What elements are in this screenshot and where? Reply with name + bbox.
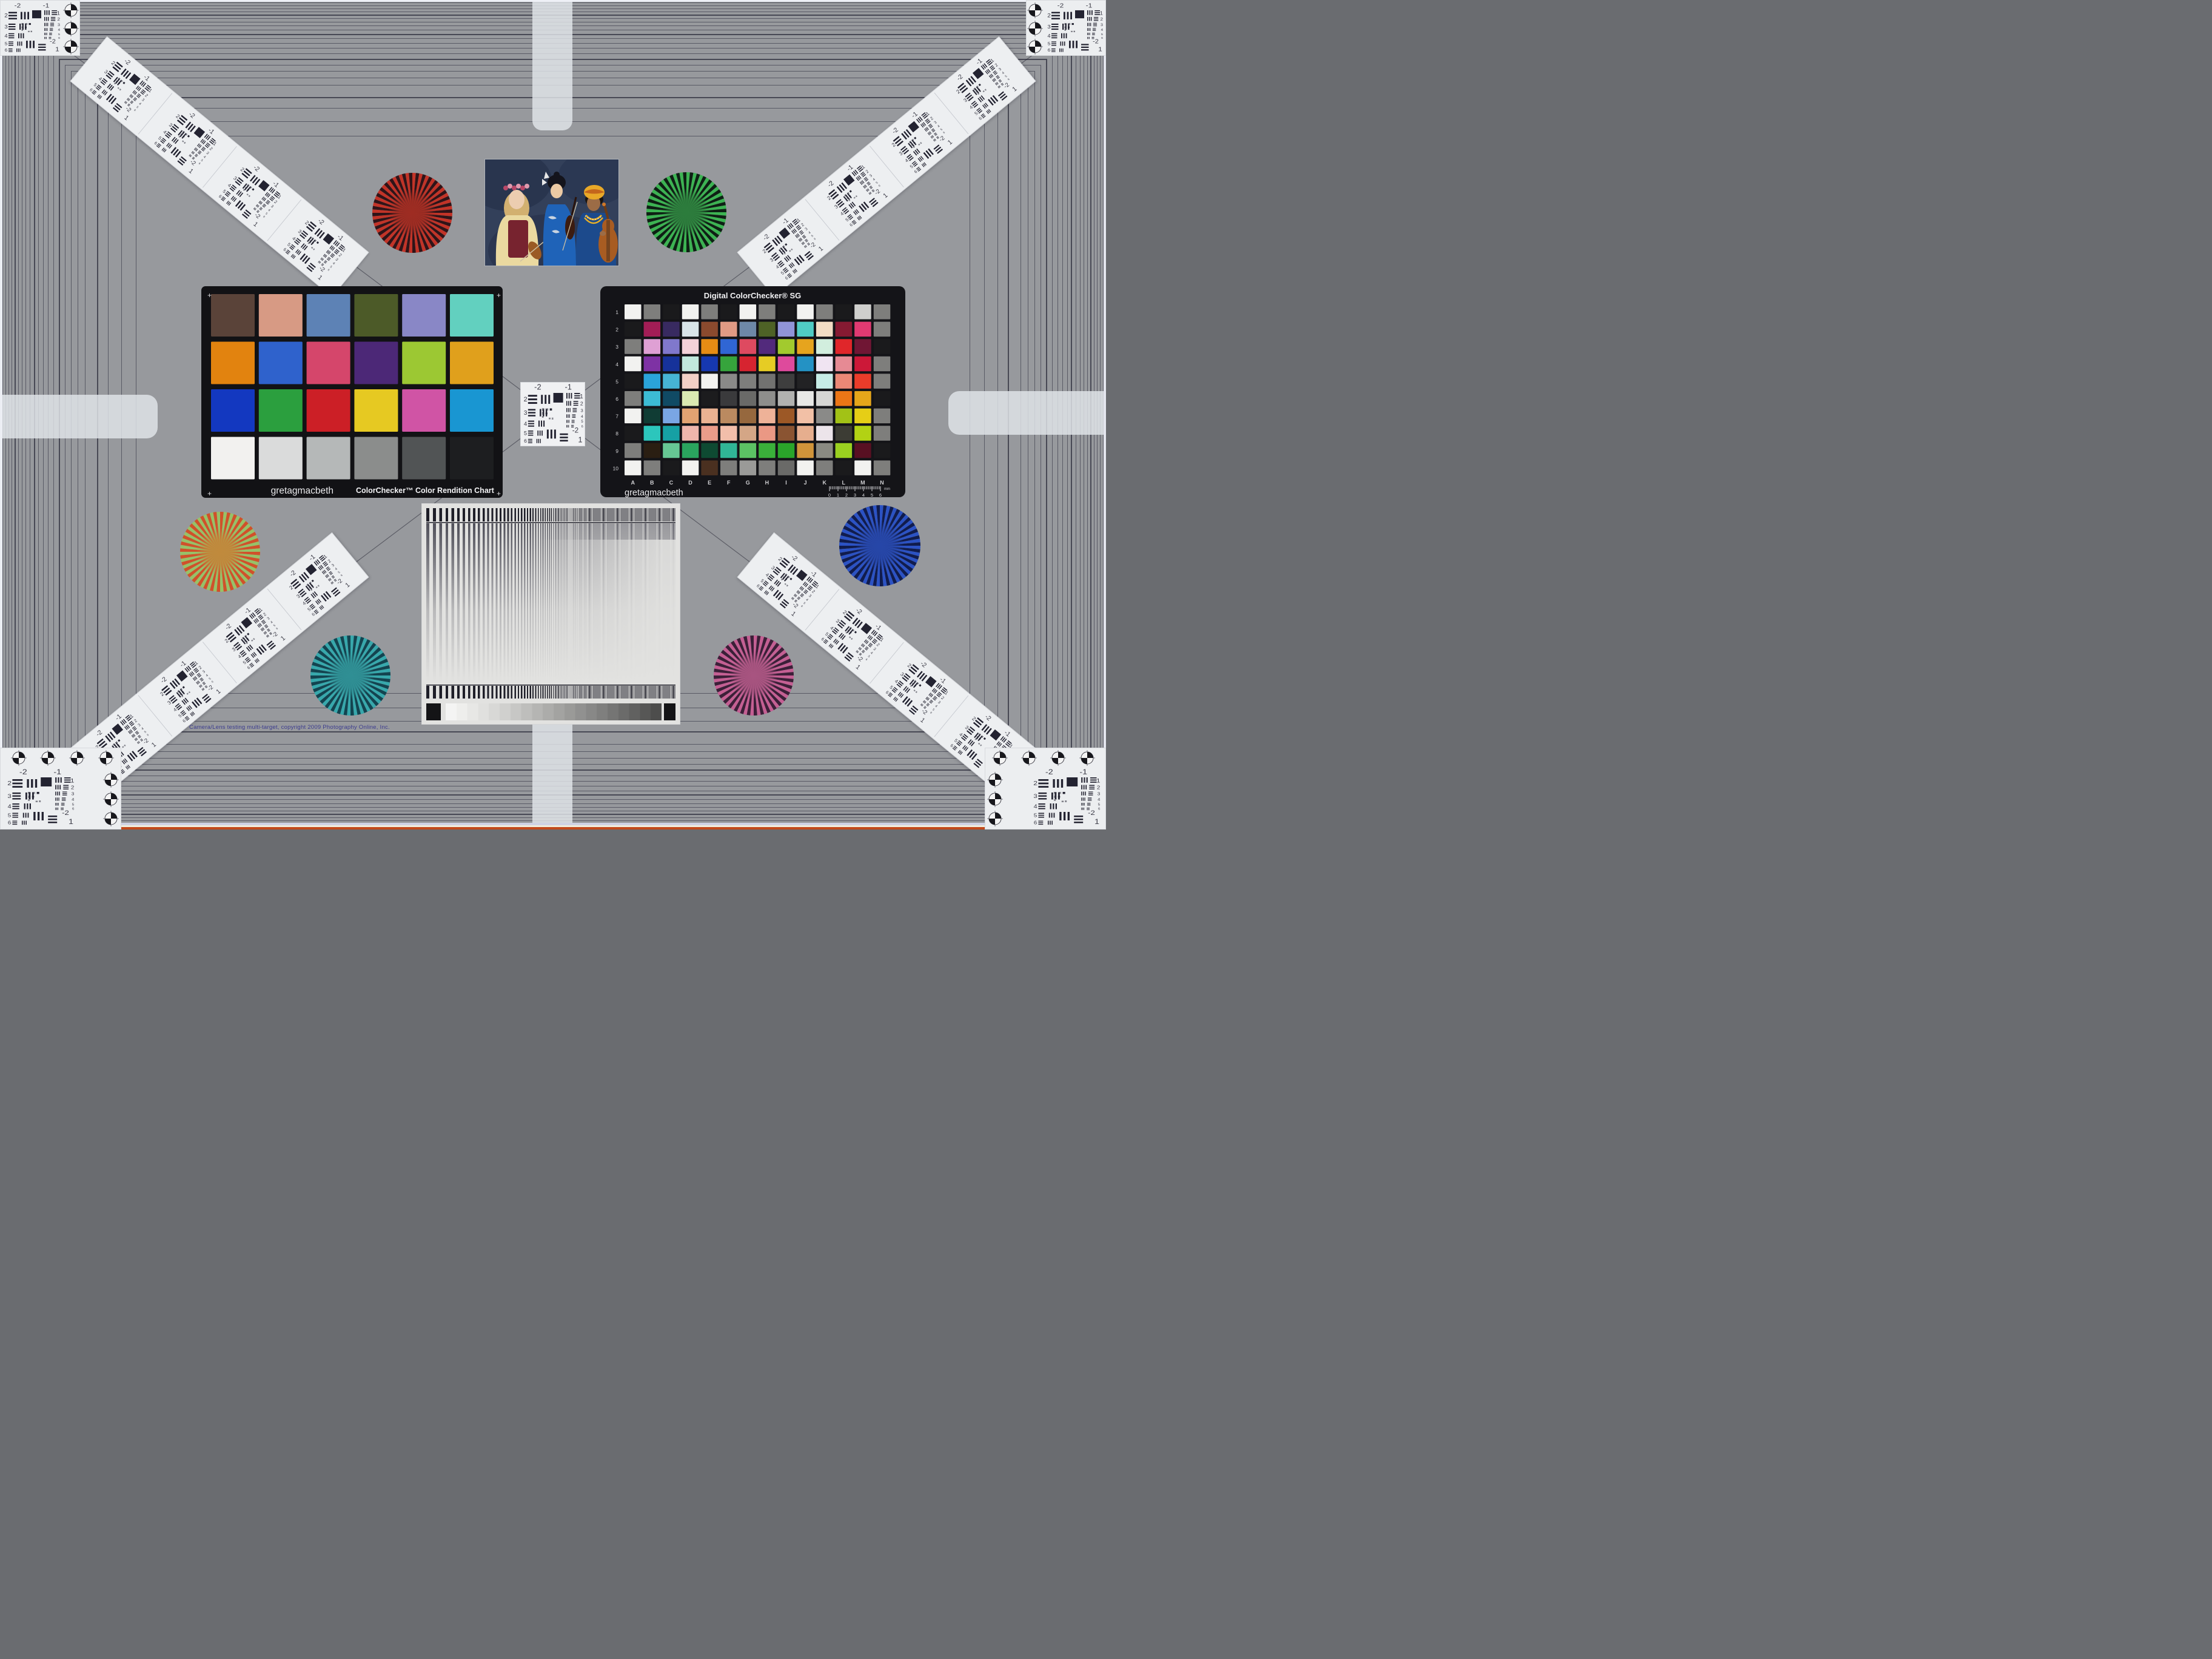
svg-text:-2: -2 — [791, 602, 800, 610]
svg-text:-1: -1 — [938, 676, 947, 685]
svg-text:8: 8 — [615, 431, 618, 437]
sg-patch — [836, 460, 853, 475]
svg-text:-2: -2 — [122, 58, 132, 67]
svg-text:6: 6 — [865, 658, 868, 662]
sg-patch — [625, 409, 642, 424]
color-patch — [211, 389, 255, 432]
sg-patch — [701, 443, 718, 458]
svg-text:3: 3 — [58, 23, 60, 27]
svg-text:1: 1 — [252, 221, 259, 229]
svg-text:6: 6 — [950, 743, 954, 748]
sg-patch — [625, 443, 642, 458]
svg-text:6: 6 — [211, 680, 214, 683]
sg-patch — [701, 460, 718, 475]
svg-text:4: 4 — [805, 598, 808, 602]
svg-text:-1: -1 — [43, 2, 50, 9]
svg-text:5: 5 — [760, 578, 765, 584]
siemens-star-red — [372, 173, 452, 253]
svg-text:-2: -2 — [1002, 82, 1011, 90]
color-patch — [450, 437, 494, 480]
siemens-star-blue — [839, 505, 920, 586]
quadrant-circle-mark — [992, 750, 1008, 766]
svg-text:E: E — [708, 480, 711, 486]
sg-patch — [874, 304, 891, 320]
svg-text:-2: -2 — [856, 654, 864, 663]
svg-text:-2: -2 — [938, 135, 947, 143]
sg-patch — [797, 357, 814, 372]
svg-text:3: 3 — [266, 616, 271, 621]
svg-text:6: 6 — [885, 690, 890, 695]
svg-text:1: 1 — [193, 660, 199, 666]
siemens-star-green — [646, 172, 726, 252]
svg-text:-2: -2 — [1088, 809, 1095, 817]
color-patch — [259, 389, 303, 432]
svg-text:-2: -2 — [789, 554, 799, 563]
quadrant-circle-mark — [1027, 21, 1043, 36]
quadrant-circle-mark — [1050, 750, 1066, 766]
sg-patch — [682, 304, 699, 320]
test-chart-photo: -2-123456123456-21-2-123456123456-21-2-1… — [0, 0, 1106, 829]
sg-patch — [740, 409, 757, 424]
sg-patch — [836, 357, 853, 372]
svg-text:4: 4 — [581, 415, 583, 419]
svg-text:+: + — [497, 291, 501, 300]
sg-patch — [797, 304, 814, 320]
svg-text:3: 3 — [331, 563, 336, 568]
svg-text:1: 1 — [215, 688, 222, 695]
svg-text:3: 3 — [615, 344, 618, 350]
svg-text:-2: -2 — [873, 188, 882, 196]
sg-patch — [663, 374, 680, 389]
svg-text:4: 4 — [267, 209, 270, 213]
quadrant-circle-mark — [987, 791, 1003, 807]
color-patch — [211, 437, 255, 480]
svg-text:7: 7 — [615, 414, 618, 420]
svg-text:5: 5 — [8, 813, 12, 818]
sg-patch — [874, 374, 891, 389]
sg-patch — [854, 304, 871, 320]
sg-patch — [797, 443, 814, 458]
quadrant-circle-mark — [69, 750, 85, 766]
svg-text:3: 3 — [137, 723, 142, 728]
svg-text:5: 5 — [93, 82, 98, 88]
svg-text:4: 4 — [873, 178, 876, 182]
color-patch — [211, 294, 255, 337]
sg-patch — [816, 374, 833, 389]
svg-text:2: 2 — [865, 169, 870, 175]
sg-patch — [816, 460, 833, 475]
sg-patch — [854, 357, 871, 372]
svg-text:2: 2 — [144, 93, 149, 98]
svg-text:2: 2 — [1033, 780, 1037, 787]
sg-patch — [874, 443, 891, 458]
sg-patch — [644, 443, 661, 458]
svg-text:4: 4 — [870, 651, 873, 655]
corner-usaf-chart: -2-123456123456-21 — [1, 1, 62, 55]
sg-patch — [644, 322, 661, 337]
svg-text:+: + — [207, 291, 212, 300]
sg-patch — [644, 374, 661, 389]
svg-text:2: 2 — [209, 146, 213, 152]
sg-patch — [874, 409, 891, 424]
svg-text:4: 4 — [8, 804, 12, 810]
sg-patch — [682, 374, 699, 389]
color-patch — [402, 389, 446, 432]
svg-text:4: 4 — [894, 679, 900, 685]
svg-text:2: 2 — [71, 785, 74, 790]
svg-text:5: 5 — [1048, 41, 1051, 46]
sg-patch — [759, 443, 776, 458]
sg-patch — [682, 339, 699, 354]
svg-text:4: 4 — [1034, 804, 1038, 810]
quadrant-circle-mark — [103, 772, 119, 788]
svg-text:-2: -2 — [318, 265, 326, 273]
svg-text:2: 2 — [327, 558, 332, 564]
svg-text:-2: -2 — [919, 660, 928, 669]
svg-text:4: 4 — [829, 625, 835, 631]
siemens-star-magenta — [714, 635, 794, 716]
svg-text:1: 1 — [882, 192, 889, 199]
svg-text:-2: -2 — [15, 2, 21, 9]
sg-patch — [682, 409, 699, 424]
copyright-text: Camera/Lens testing multi-target, copyri… — [189, 724, 390, 731]
svg-text:2: 2 — [800, 223, 805, 228]
svg-text:6: 6 — [615, 396, 618, 402]
svg-text:5: 5 — [615, 378, 618, 384]
svg-text:6: 6 — [1098, 808, 1100, 811]
sg-patch — [682, 322, 699, 337]
sg-patch — [740, 374, 757, 389]
svg-text:6: 6 — [878, 184, 881, 187]
svg-text:1: 1 — [578, 435, 582, 444]
svg-text:2: 2 — [1047, 12, 1051, 18]
svg-text:-2: -2 — [572, 427, 578, 435]
svg-text:L: L — [842, 480, 846, 486]
svg-text:3: 3 — [202, 669, 207, 674]
edge-tab-left — [0, 395, 158, 438]
svg-text:5: 5 — [1098, 803, 1101, 806]
sg-patch — [759, 426, 776, 441]
sg-patch — [644, 339, 661, 354]
svg-text:2: 2 — [338, 253, 343, 258]
svg-text:5: 5 — [871, 492, 873, 497]
svg-text:6: 6 — [942, 130, 945, 134]
sg-patch — [759, 357, 776, 372]
svg-text:1: 1 — [55, 46, 59, 53]
svg-text:2: 2 — [1100, 17, 1103, 22]
sg-patch — [701, 426, 718, 441]
edge-tab-top — [532, 0, 572, 130]
sg-patch — [663, 391, 680, 406]
svg-text:1: 1 — [580, 394, 583, 400]
sg-patch — [759, 460, 776, 475]
sg-patch — [836, 443, 853, 458]
svg-text:5: 5 — [157, 135, 163, 141]
quadrant-circle-mark — [1021, 750, 1037, 766]
svg-text:6: 6 — [263, 215, 266, 219]
svg-text:-2: -2 — [317, 217, 326, 226]
svg-text:2: 2 — [994, 62, 999, 68]
quadrant-circle-mark — [1079, 750, 1095, 766]
svg-text:6: 6 — [72, 808, 74, 811]
color-patch — [402, 342, 446, 384]
svg-text:3: 3 — [141, 98, 146, 102]
sg-patch — [663, 322, 680, 337]
svg-text:4: 4 — [937, 124, 940, 129]
svg-text:3: 3 — [581, 407, 583, 413]
sg-patch — [644, 304, 661, 320]
svg-text:3: 3 — [998, 67, 1003, 72]
svg-text:5: 5 — [1034, 813, 1037, 818]
svg-text:G: G — [746, 480, 750, 486]
quadrant-circle-mark — [63, 21, 79, 36]
color-patch — [354, 437, 398, 480]
svg-text:I: I — [785, 480, 787, 486]
quadrant-circle-mark — [103, 791, 119, 807]
corner-usaf-chart: -2-123456123456-21 — [1030, 767, 1102, 828]
sg-patch — [720, 409, 737, 424]
color-patch — [354, 294, 398, 337]
svg-text:-2: -2 — [1057, 2, 1064, 9]
svg-text:-1: -1 — [1003, 729, 1012, 738]
sg-patch — [663, 426, 680, 441]
quadrant-circle-mark — [63, 39, 79, 55]
svg-text:2: 2 — [811, 589, 816, 594]
svg-text:4: 4 — [138, 102, 141, 106]
svg-text:1: 1 — [947, 138, 954, 146]
color-patch — [450, 342, 494, 384]
sg-patch — [720, 391, 737, 406]
sg-patch — [854, 443, 871, 458]
sg-patch — [644, 460, 661, 475]
sg-patch — [854, 460, 871, 475]
sg-patch — [874, 426, 891, 441]
siemens-star-teal — [310, 635, 390, 716]
sg-patch — [625, 374, 642, 389]
quadrant-circle-mark — [63, 2, 79, 18]
quadrant-circle-mark — [103, 811, 119, 826]
sg-patch — [797, 374, 814, 389]
svg-text:5: 5 — [889, 685, 894, 691]
svg-text:4: 4 — [1047, 33, 1050, 38]
svg-text:F: F — [727, 480, 731, 486]
svg-text:-2: -2 — [288, 569, 297, 578]
svg-text:M: M — [860, 480, 865, 486]
svg-text:-2: -2 — [826, 179, 836, 189]
svg-text:1: 1 — [990, 58, 996, 64]
color-patch — [307, 342, 350, 384]
svg-text:3: 3 — [804, 227, 809, 232]
svg-text:-2: -2 — [189, 158, 197, 167]
svg-text:-2: -2 — [984, 713, 993, 722]
svg-text:-2: -2 — [854, 607, 863, 616]
svg-text:4: 4 — [1101, 28, 1103, 32]
svg-text:3: 3 — [1101, 23, 1103, 27]
svg-text:4: 4 — [524, 421, 528, 427]
svg-text:1: 1 — [258, 606, 264, 612]
sg-patch — [625, 304, 642, 320]
sg-patch — [874, 357, 891, 372]
sg-patch — [644, 357, 661, 372]
svg-text:-1: -1 — [53, 768, 61, 776]
svg-text:6: 6 — [275, 626, 278, 630]
musicians-photo — [484, 159, 619, 266]
svg-text:1: 1 — [1096, 778, 1101, 784]
sg-patch — [720, 322, 737, 337]
svg-text:-2: -2 — [159, 675, 169, 685]
sg-patch — [701, 339, 718, 354]
svg-text:4: 4 — [958, 732, 964, 738]
svg-text:Digital ColorChecker® SG: Digital ColorChecker® SG — [704, 291, 802, 300]
svg-text:5: 5 — [58, 33, 60, 36]
sg-patch — [682, 391, 699, 406]
sg-patch — [816, 426, 833, 441]
svg-text:4: 4 — [862, 492, 865, 497]
color-patch — [402, 437, 446, 480]
svg-text:gretagmacbeth: gretagmacbeth — [625, 488, 683, 497]
svg-text:5: 5 — [286, 242, 292, 248]
svg-text:5: 5 — [581, 420, 583, 424]
sg-patch — [625, 460, 642, 475]
sg-patch — [740, 304, 757, 320]
svg-text:6: 6 — [5, 48, 7, 53]
svg-text:6: 6 — [218, 194, 223, 199]
corner-registration-block: -2-123456123456-21 — [0, 748, 121, 829]
sg-patch — [625, 391, 642, 406]
quadrant-circle-mark — [1027, 2, 1043, 18]
svg-text:3: 3 — [1098, 791, 1101, 796]
sg-patch — [759, 374, 776, 389]
colorchecker-24-chart: ++++ gretagmacbeth ColorChecker™ Color R… — [201, 286, 503, 498]
svg-text:-2: -2 — [920, 708, 929, 716]
svg-text:3: 3 — [869, 173, 874, 178]
edge-tab-right — [948, 391, 1106, 435]
svg-text:5: 5 — [222, 189, 227, 195]
sg-patch — [797, 339, 814, 354]
sg-patch — [816, 304, 833, 320]
svg-text:-2: -2 — [252, 164, 261, 173]
svg-text:2: 2 — [615, 327, 618, 333]
sg-patch — [701, 391, 718, 406]
sg-patch — [720, 357, 737, 372]
svg-text:6: 6 — [146, 733, 149, 737]
sg-patch — [720, 426, 737, 441]
sg-patch — [778, 322, 795, 337]
svg-text:5: 5 — [524, 430, 527, 436]
svg-text:6: 6 — [58, 36, 60, 40]
sg-patch — [836, 409, 853, 424]
sg-patch — [759, 391, 776, 406]
sg-patch — [740, 339, 757, 354]
svg-text:6: 6 — [581, 425, 583, 429]
sg-patch — [816, 357, 833, 372]
color-patch — [211, 342, 255, 384]
svg-text:6: 6 — [800, 605, 803, 608]
sg-patch — [836, 374, 853, 389]
svg-text:-1: -1 — [874, 623, 883, 632]
svg-text:6: 6 — [756, 584, 760, 589]
svg-text:6: 6 — [524, 438, 527, 444]
svg-text:4: 4 — [291, 236, 297, 242]
svg-text:4: 4 — [1002, 72, 1005, 76]
svg-text:-2: -2 — [206, 684, 215, 692]
svg-text:-2: -2 — [253, 212, 262, 220]
svg-text:5: 5 — [72, 803, 75, 806]
sg-patch — [682, 443, 699, 458]
corner-registration-block: -2-123456123456-21 — [985, 748, 1106, 829]
color-patch — [307, 294, 350, 337]
svg-text:4: 4 — [58, 28, 60, 32]
svg-text:A: A — [631, 480, 635, 486]
svg-text:4: 4 — [227, 183, 233, 189]
svg-text:-1: -1 — [565, 383, 571, 392]
sg-patch — [759, 304, 776, 320]
svg-text:6: 6 — [820, 637, 825, 642]
svg-text:2: 2 — [4, 12, 8, 18]
svg-text:H: H — [765, 480, 769, 486]
sg-patch — [836, 426, 853, 441]
svg-text:6: 6 — [283, 247, 287, 252]
svg-text:3: 3 — [7, 794, 12, 800]
svg-text:N: N — [880, 480, 884, 486]
svg-text:6: 6 — [813, 237, 816, 241]
svg-text:-2: -2 — [224, 622, 233, 631]
sg-patch — [816, 391, 833, 406]
svg-text:1: 1 — [150, 741, 158, 749]
sg-patch — [836, 339, 853, 354]
svg-text:-1: -1 — [809, 569, 818, 578]
svg-text:4: 4 — [203, 155, 206, 159]
sg-patch — [854, 339, 871, 354]
svg-text:1: 1 — [122, 114, 130, 122]
svg-text:-2: -2 — [187, 111, 196, 120]
svg-text:4: 4 — [332, 262, 335, 266]
corner-usaf-chart: -2-123456123456-21 — [4, 767, 76, 828]
svg-text:2: 2 — [57, 17, 60, 22]
svg-text:3: 3 — [933, 120, 938, 125]
sg-patch — [740, 322, 757, 337]
svg-text:4: 4 — [335, 568, 338, 572]
svg-text:+: + — [497, 489, 501, 498]
svg-text:1: 1 — [187, 167, 195, 175]
svg-text:2: 2 — [1097, 785, 1100, 790]
svg-text:1: 1 — [129, 713, 135, 719]
sg-patch — [759, 409, 776, 424]
color-patch — [259, 294, 303, 337]
svg-text:4: 4 — [98, 76, 104, 82]
sg-patch — [797, 460, 814, 475]
sg-patch — [778, 409, 795, 424]
sg-patch — [874, 339, 891, 354]
svg-text:2: 2 — [845, 492, 848, 497]
svg-text:6: 6 — [8, 820, 11, 825]
svg-text:1: 1 — [323, 554, 329, 560]
svg-text:6: 6 — [879, 492, 882, 497]
svg-text:D: D — [688, 480, 692, 486]
svg-text:-2: -2 — [891, 126, 900, 135]
sg-patch — [701, 374, 718, 389]
sg-patch — [701, 322, 718, 337]
sg-patch — [663, 443, 680, 458]
svg-text:4: 4 — [141, 727, 144, 731]
sg-patch — [740, 391, 757, 406]
sg-patch — [701, 357, 718, 372]
svg-text:6: 6 — [198, 162, 201, 166]
sg-patch — [759, 322, 776, 337]
svg-text:6: 6 — [1007, 78, 1010, 81]
sg-patch — [836, 391, 853, 406]
sg-patch — [663, 357, 680, 372]
